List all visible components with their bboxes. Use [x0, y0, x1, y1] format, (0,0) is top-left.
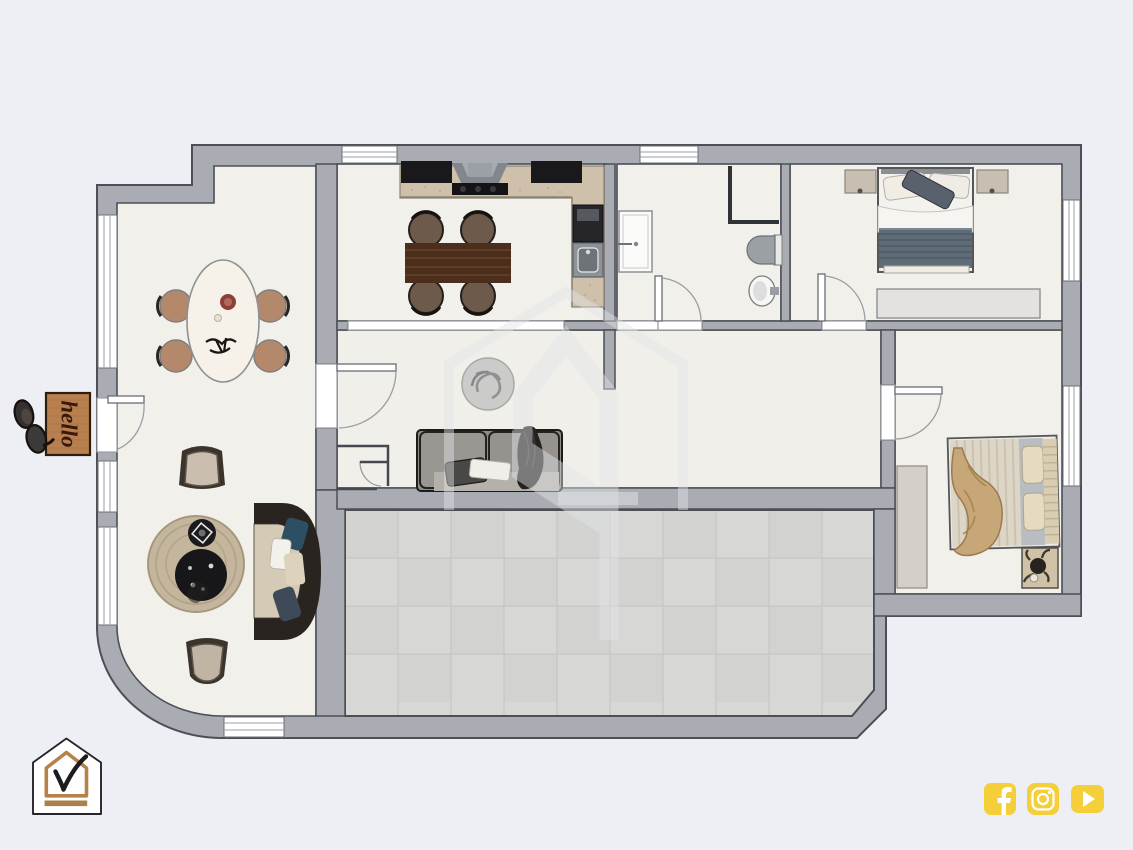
svg-text:hello: hello — [57, 400, 82, 447]
